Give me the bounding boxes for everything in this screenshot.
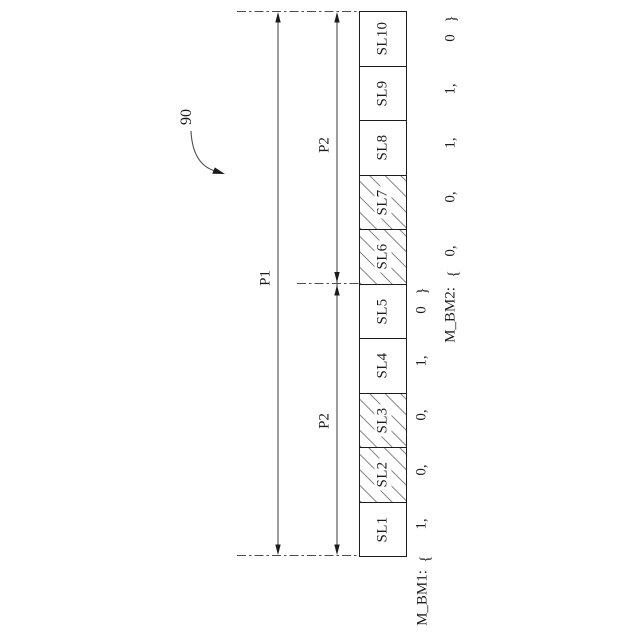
slot-cell-sl7: SL7	[360, 176, 406, 231]
bm1-value-sl3: 0,	[415, 409, 430, 420]
slot-cell-sl6: SL6	[360, 230, 406, 285]
bm2-value-sl10: 0	[444, 34, 459, 42]
slot-label: SL1	[375, 513, 392, 545]
bm2-value-sl7: 0,	[444, 191, 459, 202]
slot-label: SL5	[375, 295, 392, 327]
figure-reference-label: 90	[179, 109, 195, 125]
bm2-value-sl8: 1,	[444, 137, 459, 148]
p1-arrow-up	[275, 12, 280, 23]
slot-label: SL6	[375, 241, 392, 273]
p2-lower-arrow-up	[334, 285, 339, 296]
slot-cell-sl9: SL9	[360, 67, 406, 122]
slot-cell-sl3: SL3	[360, 394, 406, 449]
p2-lower-label: P2	[318, 413, 333, 429]
bm1-value-sl5: 0	[415, 306, 430, 314]
bm1-open-brace: {	[419, 555, 434, 562]
slot-cell-sl2: SL2	[360, 448, 406, 503]
slot-cell-sl8: SL8	[360, 121, 406, 176]
slot-cell-sl4: SL4	[360, 339, 406, 394]
p2-upper-arrow-down	[334, 272, 339, 283]
slot-cell-sl5: SL5	[360, 285, 406, 340]
p1-dimension-line	[275, 12, 280, 555]
slot-label: SL4	[375, 350, 392, 382]
slot-label: SL2	[375, 459, 392, 491]
bm2-close-brace: }	[445, 15, 460, 22]
bm1-value-sl2: 0,	[415, 464, 430, 475]
p1-label: P1	[259, 270, 274, 286]
bm1-close-brace: }	[416, 287, 431, 294]
slot-label: SL3	[375, 404, 392, 436]
patent-figure-page: { "figure_reference": "90", "dimension_l…	[0, 0, 640, 640]
slot-label: SL8	[375, 132, 392, 164]
slot-label: SL7	[375, 186, 392, 218]
bm2-label: M_BM2:	[444, 287, 459, 343]
p2-upper-label: P2	[318, 137, 333, 153]
bm2-open-brace: {	[447, 270, 462, 277]
dimension-lines	[0, 0, 640, 640]
slot-cell-sl1: SL1	[360, 503, 406, 557]
bm2-value-sl6: 0,	[444, 245, 459, 256]
slot-cell-sl10: SL10	[360, 12, 406, 67]
p1-arrow-down	[275, 545, 280, 556]
bm1-value-sl4: 1,	[415, 355, 430, 366]
slot-label: SL10	[375, 19, 392, 59]
p2-upper-arrow-up	[334, 12, 339, 23]
slot-column: SL10 SL9 SL8 SL7 SL6 SL5 SL4 SL3 SL2 SL1	[359, 11, 407, 557]
bm1-label: M_BM1:	[416, 570, 431, 626]
slot-label: SL9	[375, 77, 392, 109]
p2-lower-arrow-down	[334, 545, 339, 556]
bm2-value-sl9: 1,	[444, 83, 459, 94]
bm1-value-sl1: 1,	[415, 518, 430, 529]
reference-leader-arrow	[191, 131, 225, 174]
